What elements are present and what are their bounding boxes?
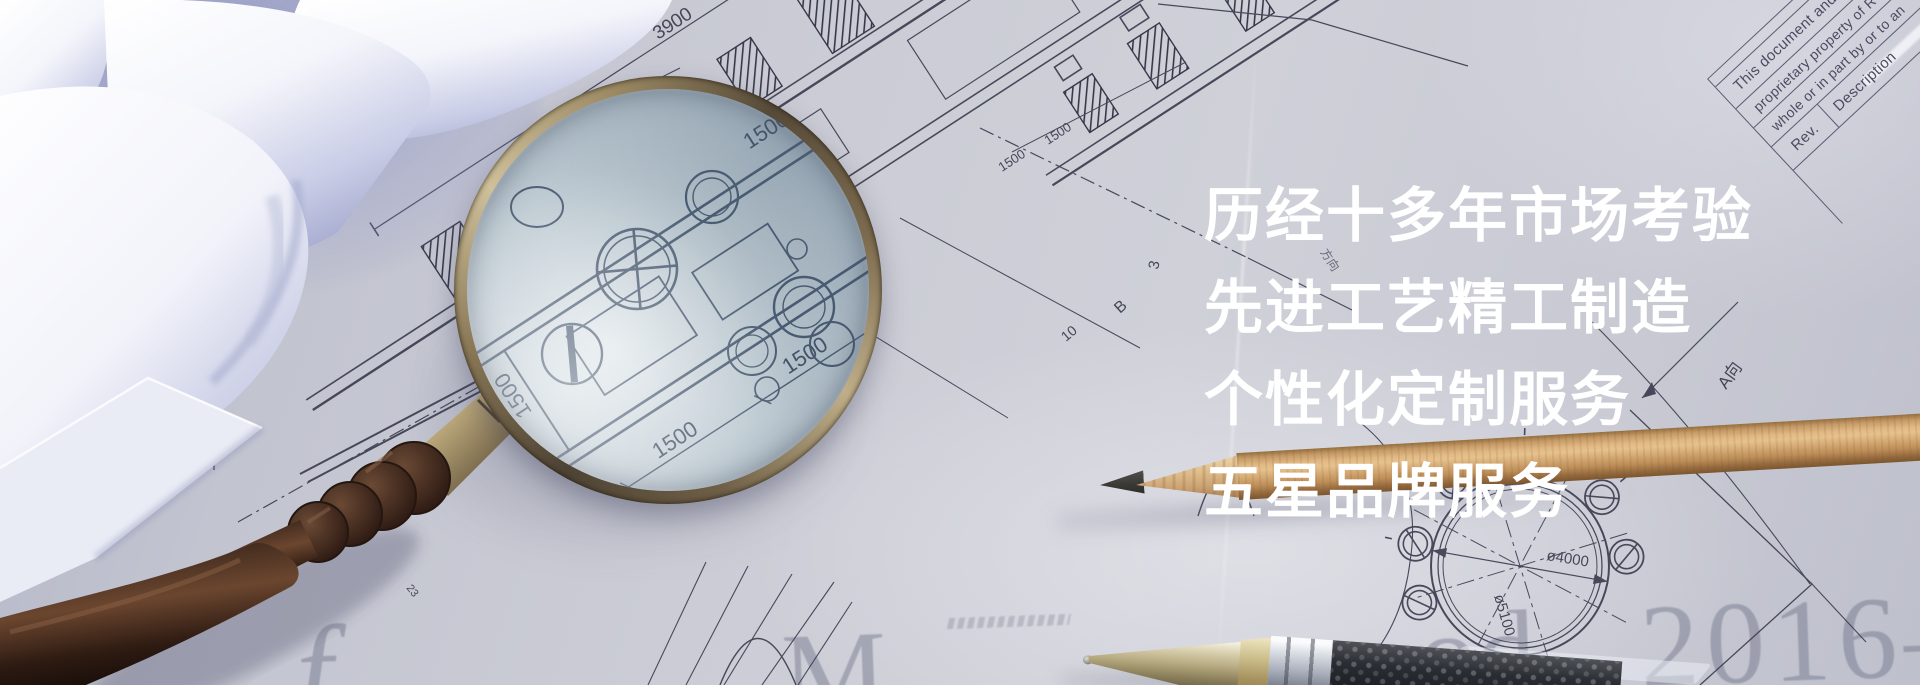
pen-gold-ring (1236, 636, 1271, 685)
hero-slogan-1: 历经十多年市场考验 (1204, 184, 1753, 248)
label-a-direction: A向 (1714, 358, 1746, 392)
magnifier-rim: 1500 1500 1500 1500 1120 (454, 76, 882, 504)
hero-slogan-3: 个性化定制服务 (1204, 368, 1631, 432)
hero-banner: f M od 2016— (0, 0, 1920, 685)
pen-metal-cone (1087, 631, 1243, 685)
dia-4000: ø4000 (1545, 547, 1590, 570)
magnifier-glass: 1500 1500 1500 1500 1120 (467, 89, 869, 491)
pencil-graphite-tip (1099, 467, 1145, 498)
hero-slogan-2: 先进工艺精工制造 (1204, 276, 1692, 340)
lens-glare (467, 89, 869, 491)
label-flow-direction: 方向 (1317, 245, 1343, 273)
dim-1500-a: 1500 (995, 146, 1027, 174)
dim-1500-b: 1500 (1041, 119, 1073, 147)
hero-slogan-4: 五星品牌服务 (1204, 460, 1570, 524)
label-10: 10 (1058, 322, 1080, 344)
pen-chrome-band (1266, 636, 1333, 685)
machine-band-secondary (996, 0, 1413, 185)
label-b: B (1111, 297, 1130, 317)
label-3: 3 (1145, 259, 1163, 271)
